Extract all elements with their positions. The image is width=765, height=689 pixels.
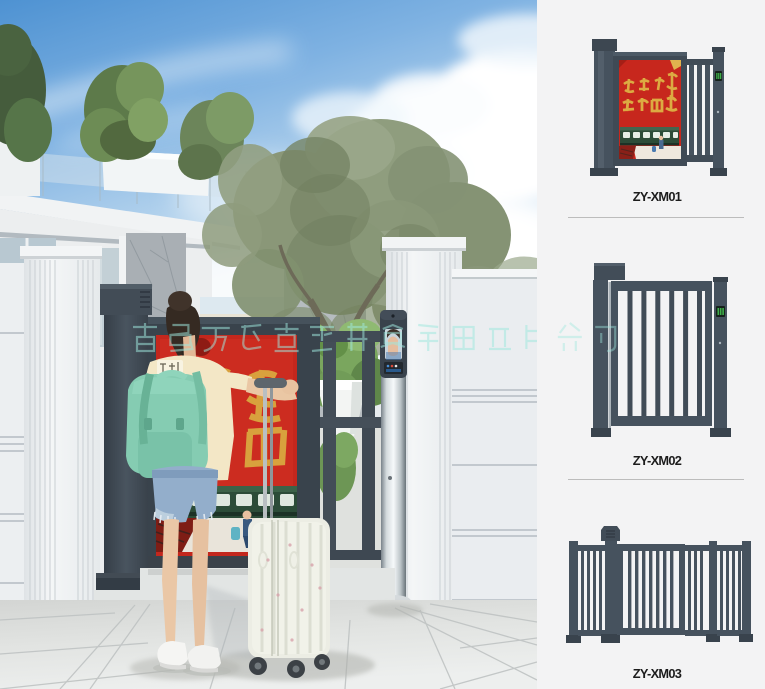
svg-text:ZY-XM01: ZY-XM01 [633, 189, 682, 204]
svg-text:ZY-XM03: ZY-XM03 [633, 666, 682, 681]
svg-text:ZY-XM02: ZY-XM02 [633, 453, 682, 468]
